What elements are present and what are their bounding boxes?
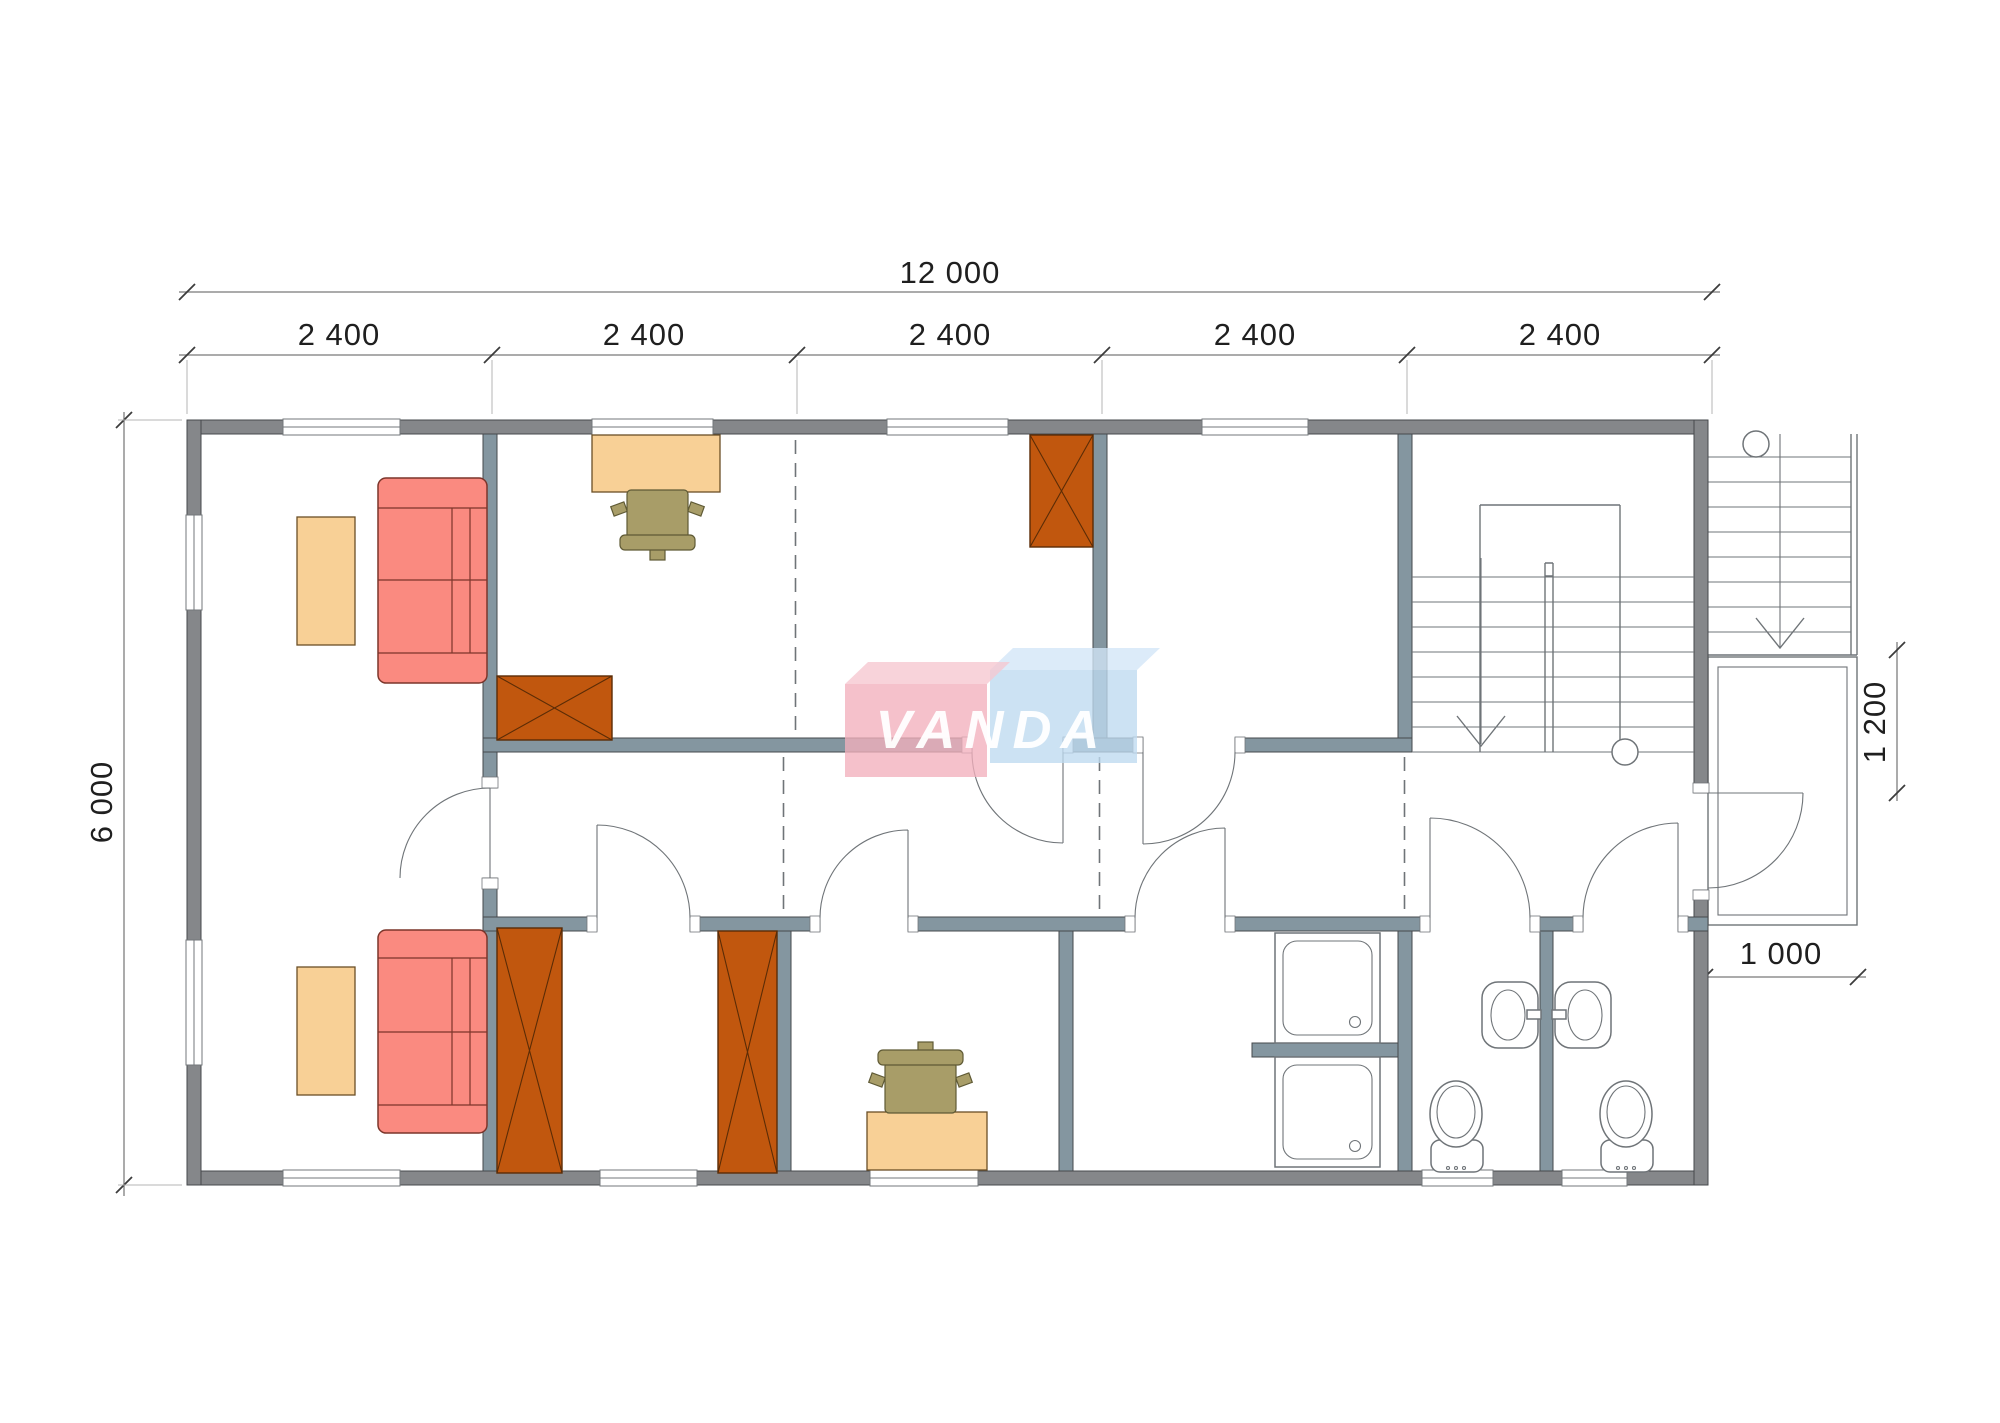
logo-text: VANDA: [876, 700, 1109, 760]
wall-corridor-bottom-2: [690, 917, 820, 931]
toilet-wc-2: [1600, 1081, 1653, 1172]
office-chair-studio: [611, 490, 705, 560]
wardrobe-bottom-1: [497, 928, 562, 1173]
sink-wc-2: [1552, 982, 1611, 1048]
dim-label-module-3: 2 400: [909, 317, 992, 352]
window-top-2: [592, 419, 713, 435]
door-desk-room: [810, 830, 918, 932]
window-top-1: [283, 419, 400, 435]
wall-stair-room: [1398, 434, 1412, 752]
office-chair-lower: [869, 1042, 973, 1113]
door-wc-2: [1573, 823, 1688, 932]
dim-total-width: 12 000: [179, 255, 1720, 300]
wall-right-upper: [1694, 420, 1708, 793]
logo-box-blue-top: [990, 648, 1160, 670]
door-shower-room: [1125, 828, 1235, 932]
wardrobe-bottom-2: [718, 931, 777, 1173]
sofa-upper: [378, 478, 487, 683]
vanda-watermark: VANDA: [845, 648, 1160, 777]
sofa-lower: [378, 930, 487, 1133]
wall-corridor-top-3: [1235, 738, 1412, 752]
coffee-table-upper: [297, 517, 355, 645]
door-bottom-room-1: [587, 825, 700, 932]
wall-wc-divider: [1540, 931, 1553, 1171]
dim-modules: 2 400 2 400 2 400 2 400 2 400: [179, 317, 1720, 414]
sink-wc-1: [1482, 982, 1541, 1048]
door-top-right-room: [1133, 737, 1245, 844]
dim-label-porch-width: 1 000: [1740, 936, 1823, 971]
window-left-1: [186, 515, 202, 610]
logo-box-pink-top: [845, 662, 1010, 684]
dim-label-module-5: 2 400: [1519, 317, 1602, 352]
floor-plan-canvas: 12 000 2 400 2 400 2 400 2 400 2 400 6 0…: [0, 0, 2000, 1423]
shower-tray-1: [1275, 933, 1380, 1043]
door-wc-1: [1420, 818, 1540, 932]
window-bottom-3: [870, 1170, 978, 1186]
window-top-4: [1202, 419, 1308, 435]
window-bottom-2: [600, 1170, 697, 1186]
dim-height: 6 000: [84, 412, 182, 1196]
desk-studio: [592, 435, 720, 492]
wall-shower-room: [1398, 931, 1412, 1171]
shower-tray-2: [1275, 1057, 1380, 1167]
dim-label-porch-depth: 1 200: [1857, 681, 1892, 764]
wall-corridor-bottom-4: [1225, 917, 1430, 931]
dim-label-module-2: 2 400: [603, 317, 686, 352]
stair-column-top-icon: [1743, 431, 1769, 457]
wardrobe-top-right: [1030, 435, 1093, 547]
desk-lower: [867, 1112, 987, 1170]
wall-right-lower: [1694, 890, 1708, 1185]
exterior-stairs: [1708, 431, 1857, 655]
door-living-room: [400, 777, 498, 889]
stair-railing: [1545, 563, 1553, 752]
dim-label-module-4: 2 400: [1214, 317, 1297, 352]
dim-porch-depth: 1 200: [1857, 642, 1905, 801]
window-left-2: [186, 940, 202, 1065]
coffee-table-lower: [297, 967, 355, 1095]
wall-bottom-room-divider-2: [1059, 931, 1073, 1171]
wall-bottom-room-divider-1: [777, 931, 791, 1171]
wall-corridor-bottom-3: [908, 917, 1135, 931]
dim-label-module-1: 2 400: [298, 317, 381, 352]
wall-shower-stub: [1252, 1043, 1398, 1057]
window-bottom-1: [283, 1170, 400, 1186]
doors: [400, 737, 1803, 932]
window-top-3: [887, 419, 1008, 435]
door-entrance: [1693, 783, 1803, 900]
dim-label-height: 6 000: [84, 761, 119, 844]
dim-label-total: 12 000: [900, 255, 1001, 290]
stair-column-bottom-icon: [1612, 739, 1638, 765]
toilet-wc-1: [1430, 1081, 1483, 1172]
interior-staircase: [1412, 505, 1694, 765]
dim-porch-width: 1 000: [1697, 936, 1866, 985]
wardrobe-studio: [497, 676, 612, 740]
